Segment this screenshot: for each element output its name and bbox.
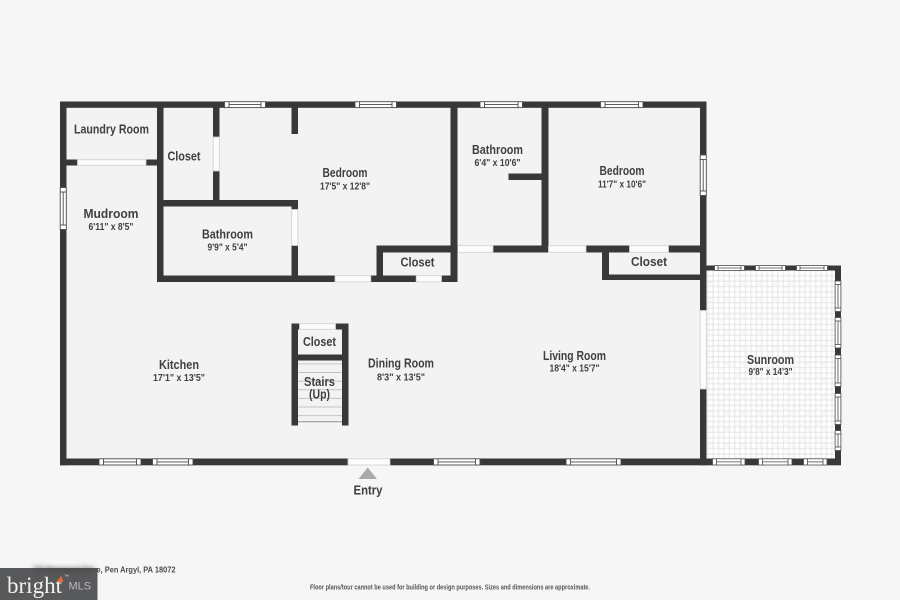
- svg-text:9'8" x 14'3": 9'8" x 14'3": [749, 367, 793, 378]
- svg-text:Floor plans/tour cannot be use: Floor plans/tour cannot be used for buil…: [310, 585, 590, 592]
- svg-text:e, Pen Argyl, PA 18072: e, Pen Argyl, PA 18072: [97, 565, 176, 575]
- svg-text:Closet: Closet: [168, 149, 202, 164]
- svg-text:Entry: Entry: [354, 483, 384, 498]
- svg-text:Closet: Closet: [401, 255, 436, 270]
- svg-text:MLS: MLS: [69, 581, 92, 593]
- svg-text:9'9" x 5'4": 9'9" x 5'4": [208, 243, 248, 254]
- svg-text:Closet: Closet: [631, 254, 668, 269]
- svg-text:(Up): (Up): [309, 387, 330, 402]
- svg-text:Bedroom: Bedroom: [600, 163, 645, 178]
- svg-text:Mudroom: Mudroom: [84, 206, 139, 221]
- svg-text:Bedroom: Bedroom: [323, 165, 368, 180]
- svg-text:6'11" x 8'5": 6'11" x 8'5": [89, 222, 134, 233]
- svg-text:18'4" x 15'7": 18'4" x 15'7": [550, 364, 600, 375]
- svg-text:11'7" x 10'6": 11'7" x 10'6": [598, 180, 646, 191]
- svg-text:123 Stonewood Driv: 123 Stonewood Driv: [33, 565, 95, 576]
- svg-text:Kitchen: Kitchen: [159, 357, 199, 372]
- svg-text:Living Room: Living Room: [543, 348, 606, 363]
- svg-text:8'3" x 13'5": 8'3" x 13'5": [377, 373, 425, 384]
- svg-text:Dining Room: Dining Room: [368, 356, 434, 371]
- svg-text:Bathroom: Bathroom: [472, 142, 523, 157]
- svg-text:Closet: Closet: [303, 334, 337, 349]
- svg-text:17'5" x 12'8": 17'5" x 12'8": [320, 182, 370, 193]
- svg-text:6'4" x 10'6": 6'4" x 10'6": [475, 158, 521, 169]
- svg-text:Bathroom: Bathroom: [202, 227, 253, 242]
- svg-text:17'1" x 13'5": 17'1" x 13'5": [153, 373, 205, 384]
- svg-text:Laundry Room: Laundry Room: [74, 122, 149, 137]
- svg-text:bright: bright: [7, 573, 63, 598]
- svg-text:Sunroom: Sunroom: [747, 352, 794, 367]
